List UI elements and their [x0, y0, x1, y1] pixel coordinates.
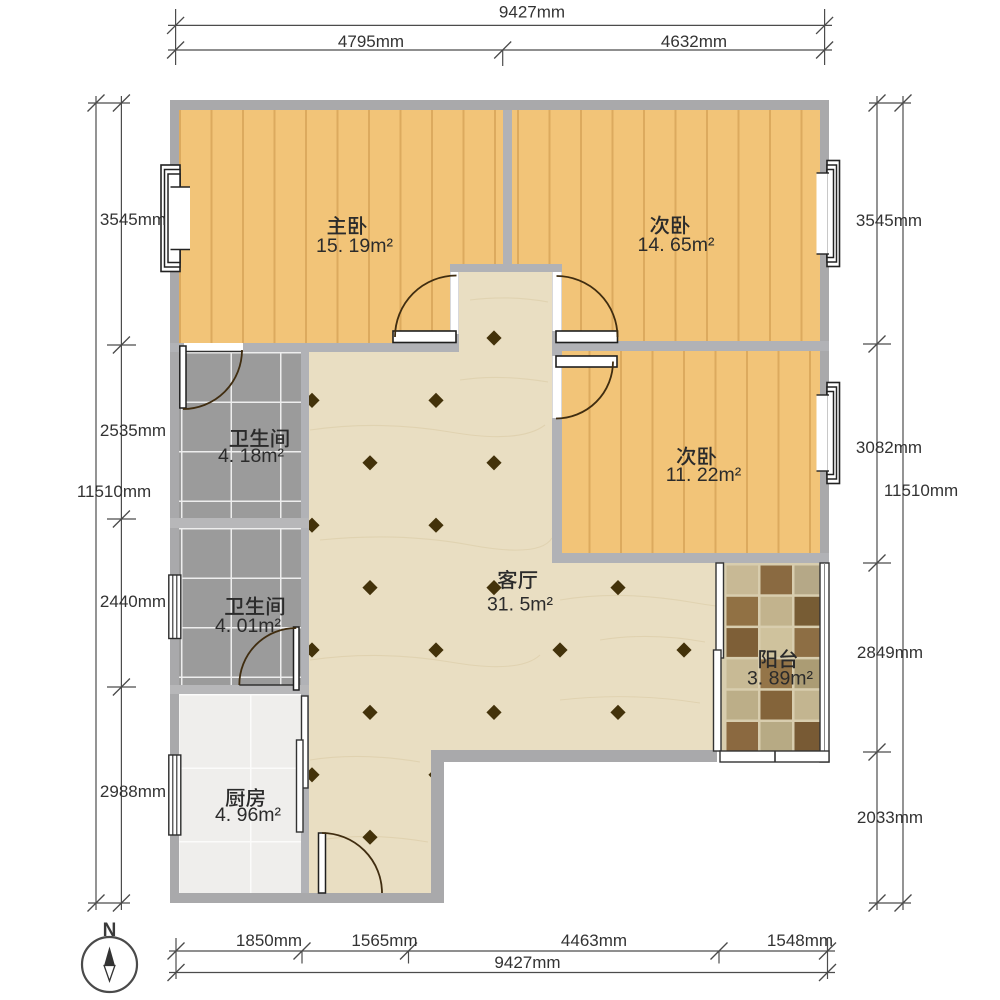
- svg-text:31. 5m²: 31. 5m²: [487, 594, 554, 616]
- svg-text:11510mm: 11510mm: [884, 481, 958, 500]
- svg-text:3. 89m²: 3. 89m²: [747, 668, 814, 690]
- svg-text:2033mm: 2033mm: [857, 808, 923, 827]
- svg-text:3545mm: 3545mm: [100, 210, 166, 229]
- svg-text:4632mm: 4632mm: [661, 32, 727, 51]
- svg-text:9427mm: 9427mm: [499, 3, 565, 22]
- svg-text:9427mm: 9427mm: [494, 953, 560, 972]
- svg-text:2535mm: 2535mm: [100, 421, 166, 440]
- svg-text:15. 19m²: 15. 19m²: [316, 235, 393, 257]
- svg-text:2988mm: 2988mm: [100, 782, 166, 801]
- svg-text:1565mm: 1565mm: [351, 931, 417, 950]
- svg-text:2849mm: 2849mm: [857, 643, 923, 662]
- svg-text:N: N: [103, 920, 117, 941]
- svg-text:4. 01m²: 4. 01m²: [215, 615, 282, 637]
- svg-text:4463mm: 4463mm: [561, 931, 627, 950]
- svg-text:11510mm: 11510mm: [77, 482, 151, 501]
- svg-text:4. 18m²: 4. 18m²: [218, 445, 285, 467]
- svg-text:3545mm: 3545mm: [856, 211, 922, 230]
- svg-text:3082mm: 3082mm: [856, 438, 922, 457]
- svg-text:1548mm: 1548mm: [767, 931, 833, 950]
- svg-text:11. 22m²: 11. 22m²: [666, 464, 742, 486]
- svg-text:4795mm: 4795mm: [338, 32, 404, 51]
- svg-text:14. 65m²: 14. 65m²: [638, 234, 715, 256]
- svg-text:1850mm: 1850mm: [236, 931, 302, 950]
- svg-text:4. 96m²: 4. 96m²: [215, 804, 282, 826]
- svg-text:2440mm: 2440mm: [100, 592, 166, 611]
